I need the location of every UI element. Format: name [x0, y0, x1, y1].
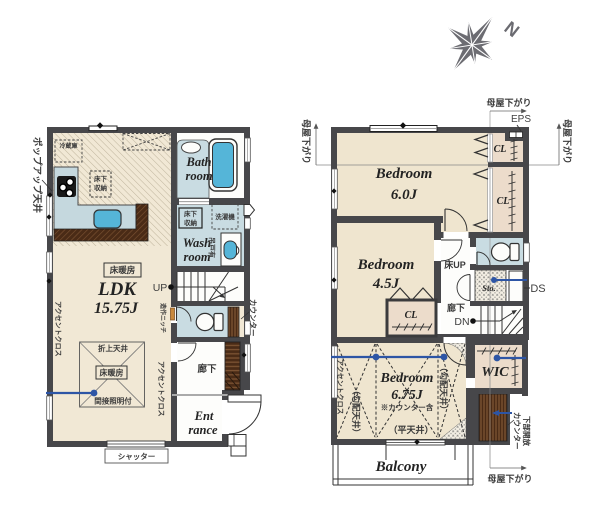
svg-text:床下: 床下 — [94, 174, 108, 183]
svg-text:アクセントクロス: アクセントクロス — [157, 361, 166, 417]
svg-text:UP: UP — [153, 282, 168, 294]
svg-text:母屋下がり: 母屋下がり — [562, 119, 573, 164]
svg-text:CL: CL — [405, 310, 418, 321]
svg-text:WIC: WIC — [481, 365, 509, 380]
svg-text:床下: 床下 — [184, 209, 198, 218]
svg-text:（勾配天井）: （勾配天井） — [351, 386, 361, 437]
svg-text:Ent: Ent — [194, 409, 214, 423]
svg-text:Bedroom: Bedroom — [357, 257, 415, 273]
svg-text:Bedroom: Bedroom — [380, 371, 434, 386]
svg-text:下部開放: 下部開放 — [522, 416, 532, 446]
svg-text:6.0J: 6.0J — [391, 187, 418, 203]
svg-text:吊戸有: 吊戸有 — [208, 237, 217, 258]
svg-text:洗濯機: 洗濯機 — [215, 212, 235, 221]
svg-text:Wash: Wash — [183, 236, 211, 250]
svg-text:アクセントクロス: アクセントクロス — [336, 359, 345, 415]
svg-text:4.5J: 4.5J — [372, 276, 400, 292]
svg-text:冷蔵庫: 冷蔵庫 — [59, 142, 77, 150]
svg-text:母屋下がり: 母屋下がり — [487, 473, 532, 484]
svg-text:room: room — [185, 169, 212, 183]
svg-text:カウンター: カウンター — [513, 412, 523, 450]
svg-text:（勾配天井）: （勾配天井） — [439, 363, 449, 414]
svg-text:廊下: 廊下 — [447, 302, 465, 313]
svg-text:間接照明付: 間接照明付 — [94, 396, 132, 406]
svg-text:Balcony: Balcony — [375, 459, 427, 475]
svg-text:収納: 収納 — [184, 218, 198, 227]
svg-text:アクセントクロス: アクセントクロス — [54, 301, 63, 357]
svg-text:母屋下がり: 母屋下がり — [301, 119, 312, 164]
svg-text:DN: DN — [454, 316, 469, 328]
svg-text:※カウンター含: ※カウンター含 — [381, 402, 434, 412]
svg-text:（平天井）: （平天井） — [388, 424, 433, 435]
svg-text:EPS: EPS — [511, 114, 531, 125]
svg-text:廊下: 廊下 — [197, 363, 217, 375]
svg-text:6.75J: 6.75J — [391, 388, 424, 403]
svg-text:床暖房: 床暖房 — [100, 368, 124, 378]
svg-text:ポップアップ天井: ポップアップ天井 — [31, 137, 43, 214]
svg-text:シャッター: シャッター — [118, 451, 156, 461]
svg-text:15.75J: 15.75J — [94, 300, 139, 317]
svg-text:カウンター: カウンター — [249, 299, 259, 337]
svg-text:Sto.: Sto. — [482, 283, 495, 293]
svg-text:床暖房: 床暖房 — [110, 265, 136, 275]
svg-text:Bath: Bath — [185, 155, 211, 169]
svg-text:収納: 収納 — [94, 183, 108, 192]
svg-text:CL: CL — [497, 196, 510, 207]
svg-text:母屋下がり: 母屋下がり — [486, 97, 531, 108]
svg-text:折上天井: 折上天井 — [98, 343, 128, 353]
svg-text:rance: rance — [188, 423, 218, 437]
svg-text:DS: DS — [530, 283, 545, 295]
svg-text:床UP: 床UP — [444, 259, 466, 270]
svg-text:LDK: LDK — [97, 279, 137, 300]
svg-text:CL: CL — [494, 144, 507, 155]
svg-text:造作ニッチ: 造作ニッチ — [159, 303, 167, 333]
svg-text:Bedroom: Bedroom — [375, 166, 433, 182]
svg-text:room: room — [183, 250, 210, 264]
